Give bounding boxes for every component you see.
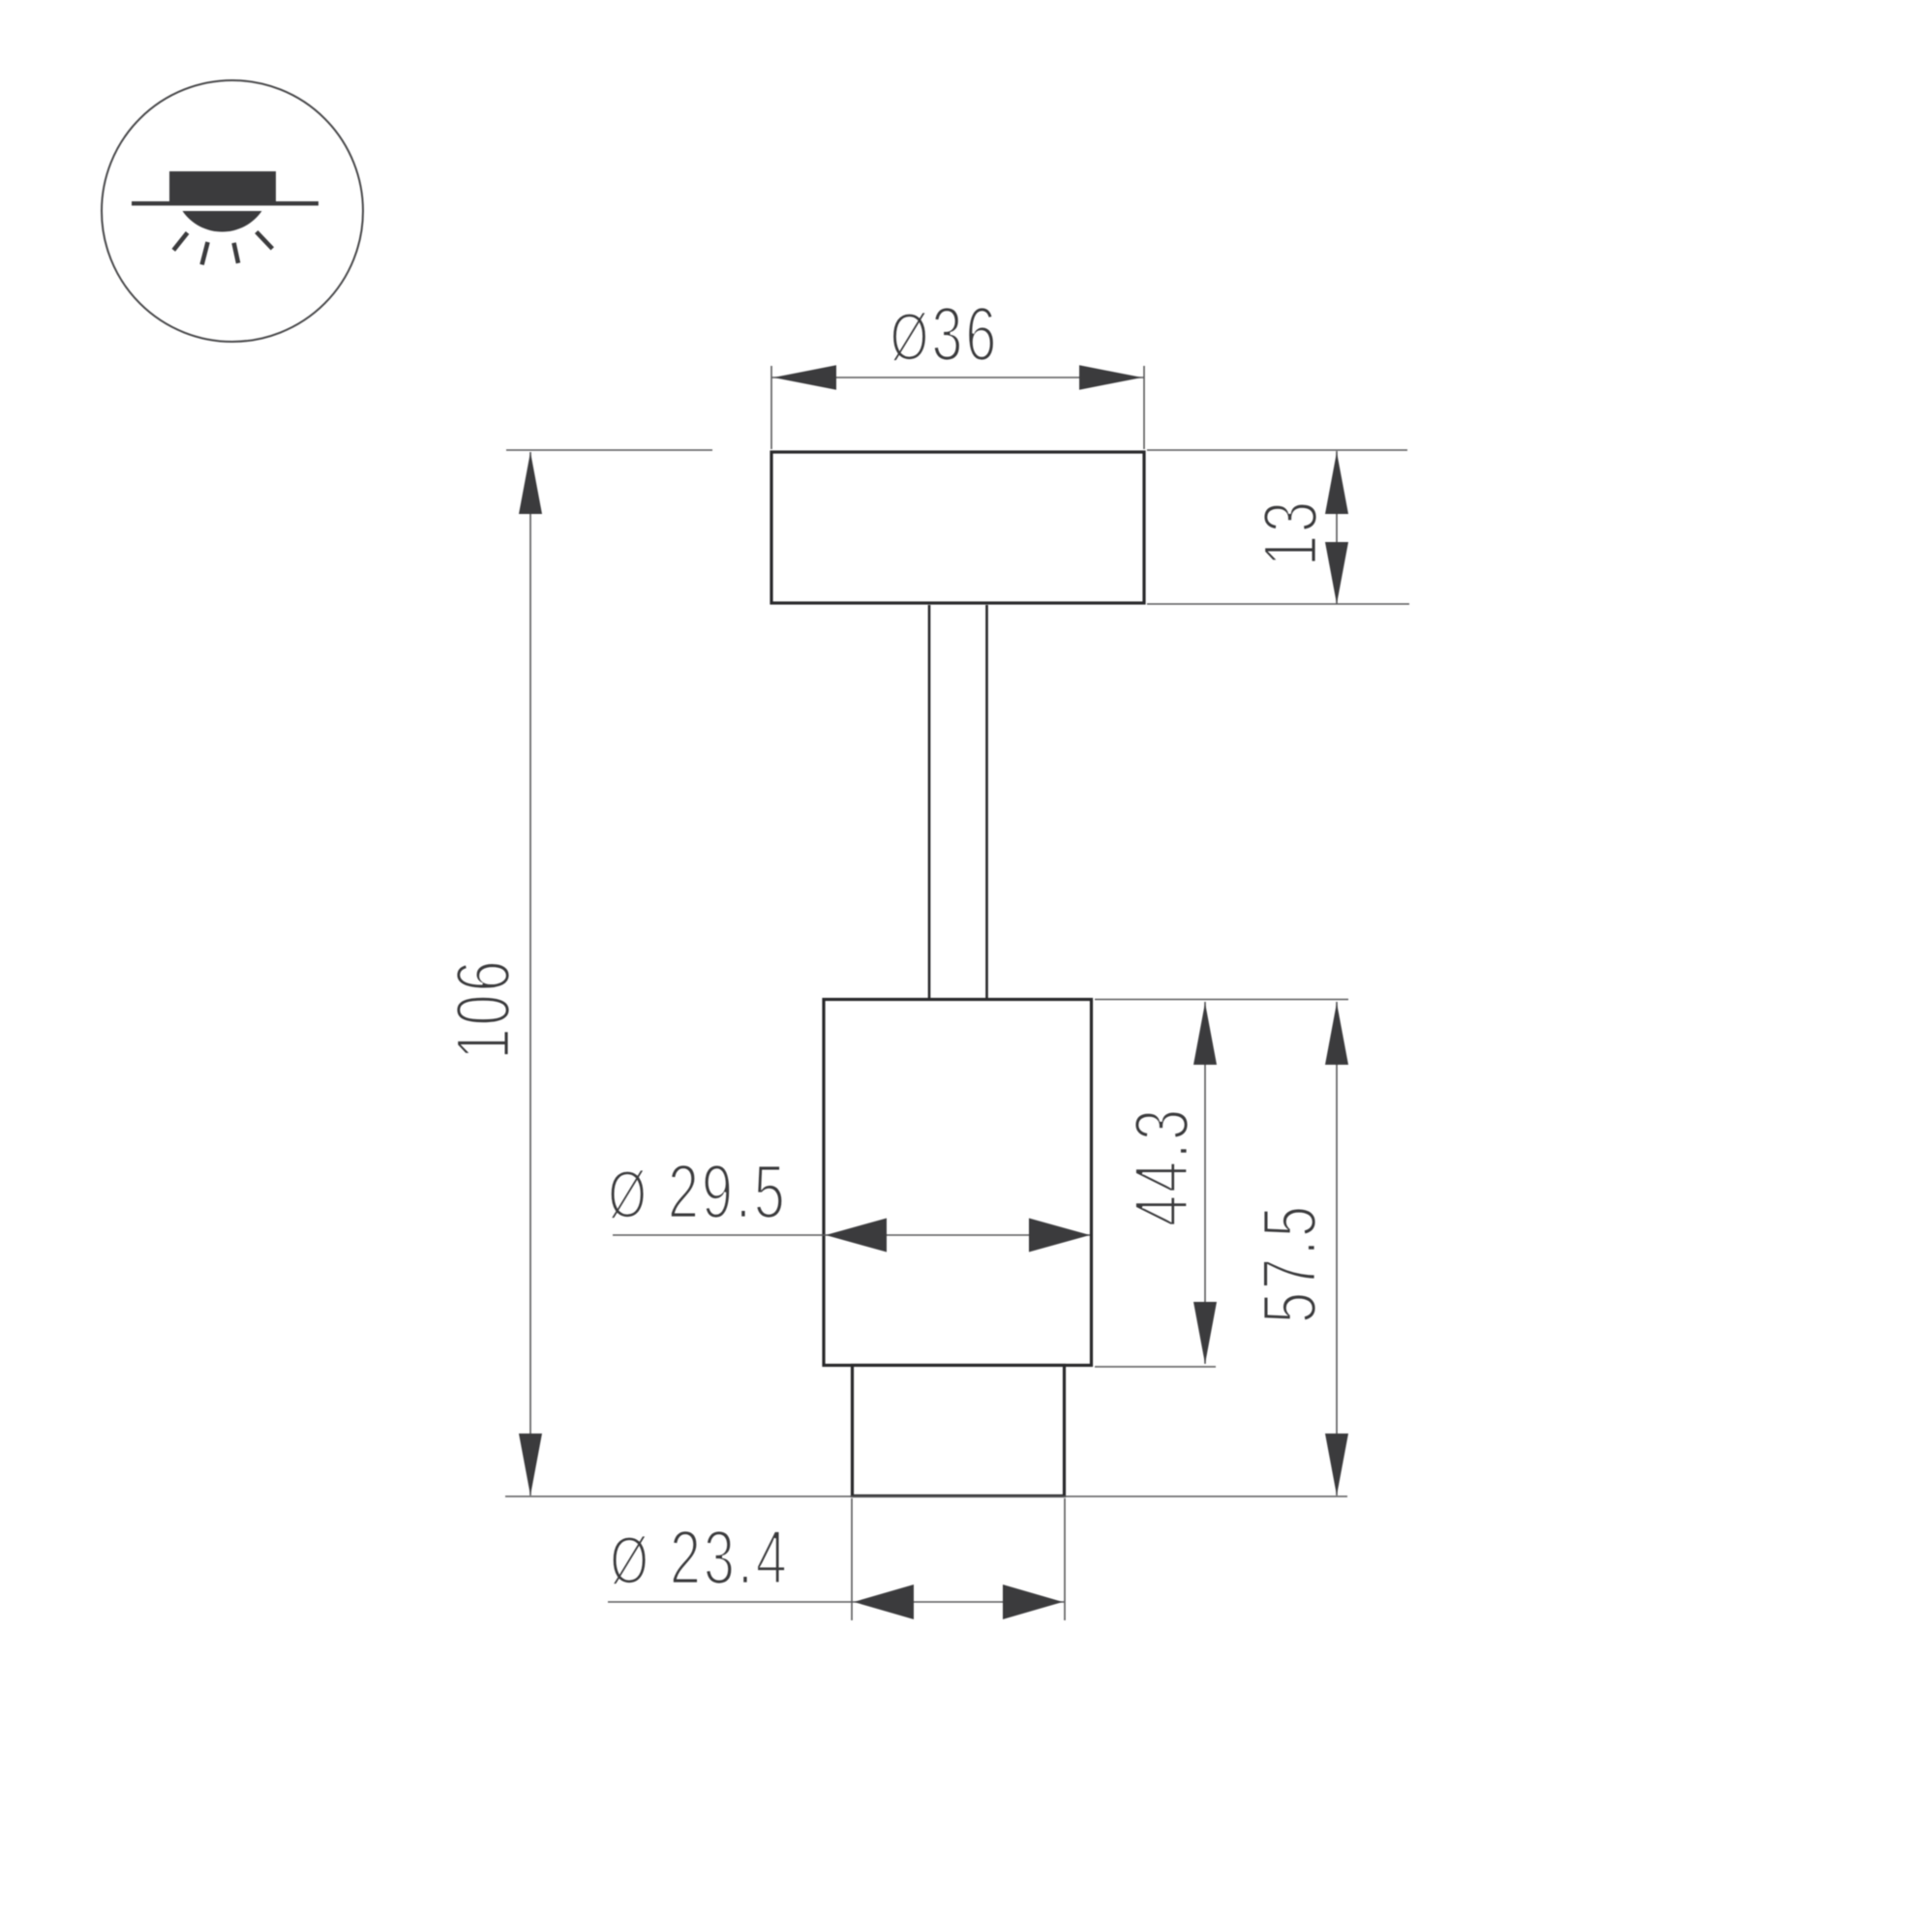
svg-text:57.5: 57.5 [1246, 1203, 1332, 1323]
svg-text:Ø 29.5: Ø 29.5 [608, 1148, 788, 1234]
svg-text:Ø36: Ø36 [891, 290, 1000, 377]
svg-text:13: 13 [1247, 498, 1333, 566]
svg-text:44.3: 44.3 [1118, 1106, 1204, 1226]
svg-text:106: 106 [439, 958, 526, 1060]
svg-text:Ø 23.4: Ø 23.4 [610, 1514, 790, 1600]
